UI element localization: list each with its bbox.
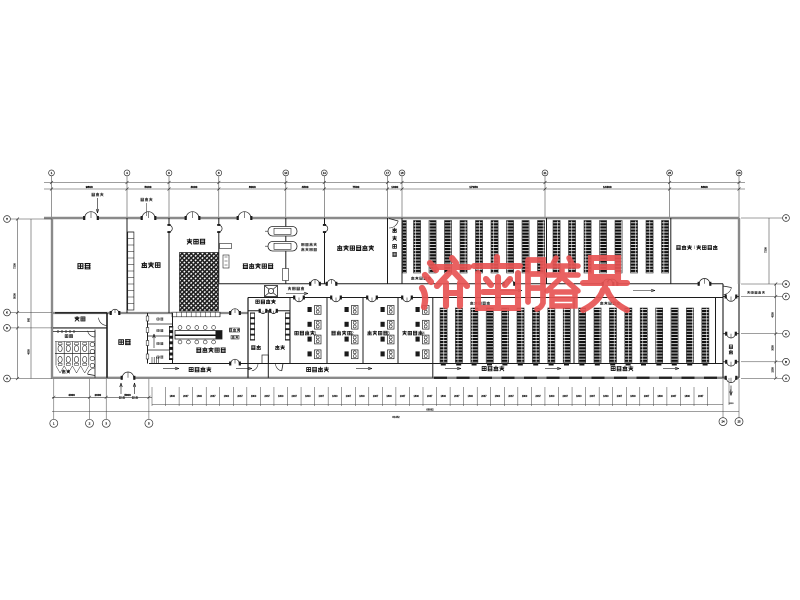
- svg-text:2000: 2000: [729, 403, 735, 405]
- svg-text:4300: 4300: [68, 393, 75, 397]
- svg-text:4600: 4600: [28, 349, 31, 355]
- svg-text:4500: 4500: [772, 312, 775, 318]
- svg-text:2067: 2067: [508, 395, 514, 398]
- svg-text:4000: 4000: [190, 185, 197, 189]
- svg-text:H: H: [785, 216, 787, 220]
- svg-text:25: 25: [668, 171, 672, 175]
- svg-text:25: 25: [737, 420, 741, 424]
- svg-text:10: 10: [284, 171, 288, 175]
- svg-text:1800: 1800: [278, 395, 284, 398]
- svg-text:1800: 1800: [413, 395, 419, 398]
- svg-text:5000: 5000: [124, 393, 131, 397]
- svg-text:2067: 2067: [698, 395, 704, 398]
- svg-text:3000: 3000: [772, 345, 775, 351]
- svg-text:2067: 2067: [264, 395, 270, 398]
- svg-text:2067: 2067: [535, 395, 541, 398]
- svg-text:2067: 2067: [481, 395, 487, 398]
- svg-text:B: B: [785, 360, 787, 364]
- svg-text:1800: 1800: [549, 395, 555, 398]
- svg-text:17050: 17050: [469, 185, 478, 189]
- svg-text:1800: 1800: [684, 395, 690, 398]
- svg-text:24: 24: [721, 420, 725, 424]
- svg-text:14: 14: [323, 171, 327, 175]
- svg-text:1800: 1800: [332, 395, 338, 398]
- svg-text:2067: 2067: [292, 395, 298, 398]
- svg-text:F: F: [785, 295, 787, 299]
- svg-text:2067: 2067: [617, 395, 623, 398]
- svg-text:2067: 2067: [210, 395, 216, 398]
- svg-text:1800: 1800: [386, 395, 392, 398]
- svg-text:2067: 2067: [671, 395, 677, 398]
- svg-text:14400: 14400: [603, 185, 612, 189]
- svg-text:1: 1: [53, 421, 55, 425]
- svg-text:6: 6: [168, 171, 170, 175]
- svg-text:8000: 8000: [249, 185, 256, 189]
- svg-text:7500: 7500: [352, 185, 359, 189]
- svg-text:5000: 5000: [13, 293, 17, 299]
- svg-text:2067: 2067: [183, 395, 189, 398]
- svg-text:2067: 2067: [319, 395, 325, 398]
- svg-text:28: 28: [737, 171, 741, 175]
- svg-text:1800: 1800: [441, 395, 447, 398]
- svg-text:1800: 1800: [170, 395, 176, 398]
- svg-text:1800: 1800: [522, 395, 528, 398]
- svg-text:7200: 7200: [764, 247, 768, 253]
- svg-text:17: 17: [386, 171, 390, 175]
- svg-text:9800: 9800: [86, 185, 93, 189]
- svg-text:3: 3: [105, 421, 107, 425]
- svg-text:5000: 5000: [145, 185, 152, 189]
- svg-text:1800: 1800: [657, 395, 663, 398]
- svg-text:2067: 2067: [590, 395, 596, 398]
- svg-text:1: 1: [51, 171, 53, 175]
- svg-text:8300: 8300: [701, 185, 708, 189]
- svg-text:900: 900: [28, 317, 31, 322]
- svg-text:7200: 7200: [13, 263, 17, 269]
- svg-text:2067: 2067: [346, 395, 352, 398]
- svg-text:2067: 2067: [373, 395, 379, 398]
- svg-text:21: 21: [543, 171, 547, 175]
- svg-text:1000: 1000: [391, 185, 398, 189]
- svg-text:2067: 2067: [563, 395, 569, 398]
- svg-text:2067: 2067: [400, 395, 406, 398]
- svg-text:1800: 1800: [251, 395, 257, 398]
- svg-text:1800: 1800: [224, 395, 230, 398]
- svg-text:2067: 2067: [427, 395, 433, 398]
- svg-text:1800: 1800: [197, 395, 203, 398]
- svg-text:5: 5: [148, 421, 150, 425]
- svg-text:2000: 2000: [95, 393, 102, 397]
- svg-text:1800: 1800: [305, 395, 311, 398]
- svg-text:1800: 1800: [359, 395, 365, 398]
- svg-text:1800: 1800: [495, 395, 501, 398]
- svg-text:H: H: [6, 217, 8, 221]
- svg-text:4: 4: [126, 171, 128, 175]
- svg-text:4500: 4500: [302, 185, 309, 189]
- svg-text:2067: 2067: [644, 395, 650, 398]
- svg-text:1500: 1500: [772, 367, 775, 373]
- svg-text:2: 2: [89, 421, 91, 425]
- svg-text:2067: 2067: [454, 395, 460, 398]
- svg-text:8: 8: [218, 171, 220, 175]
- svg-text:2067: 2067: [237, 395, 243, 398]
- svg-text:1800: 1800: [576, 395, 582, 398]
- svg-text:68092: 68092: [426, 407, 434, 411]
- svg-text:1800: 1800: [603, 395, 609, 398]
- svg-text:18: 18: [400, 171, 404, 175]
- svg-text:1800: 1800: [630, 395, 636, 398]
- svg-text:1600: 1600: [731, 389, 733, 395]
- svg-text:1800: 1800: [468, 395, 474, 398]
- svg-text:81452: 81452: [392, 415, 400, 419]
